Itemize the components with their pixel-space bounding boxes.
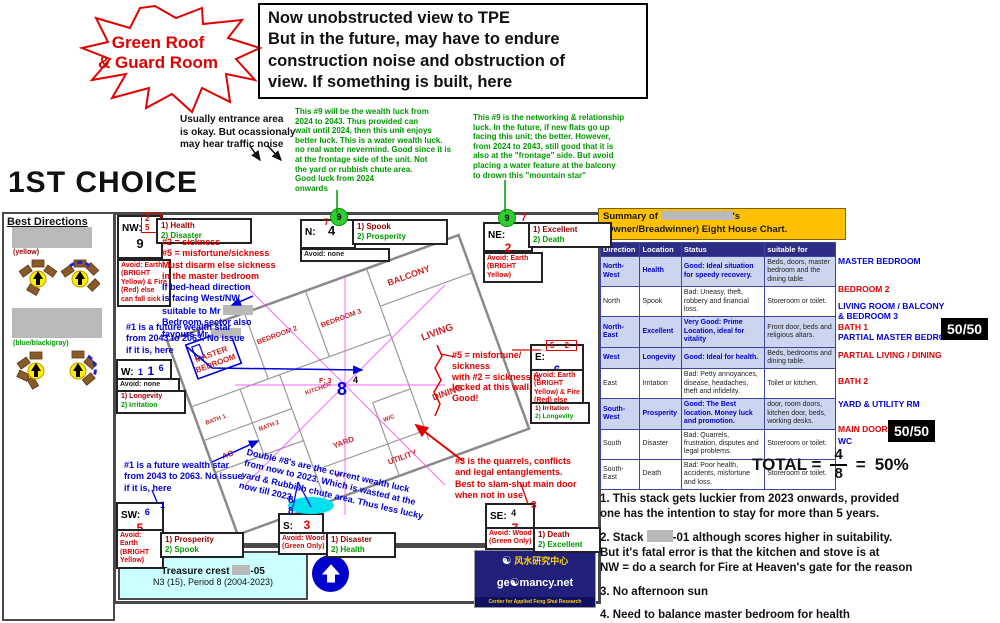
lucky-star-circle: 9 bbox=[498, 209, 516, 227]
starburst-label: Green Roof & Guard Room bbox=[78, 33, 238, 73]
table-row: South-WestProsperity Good: The Best loca… bbox=[601, 399, 836, 429]
note-1: 1. This stack gets luckier from 2023 onw… bbox=[600, 492, 998, 521]
luck-2: 2) Irritation bbox=[121, 402, 181, 411]
avoid-se: Avoid: Wood (Green Only) bbox=[485, 527, 537, 550]
best-directions-caption-2: (blue/black/gray) bbox=[13, 340, 69, 347]
score-badge-1: 50/50 bbox=[941, 318, 988, 340]
compass-w: W: 1 1 6 bbox=[116, 359, 172, 380]
up-arrow-icon bbox=[320, 563, 342, 585]
avoid-ne: Avoid: Earth (BRIGHT Yellow) bbox=[483, 252, 543, 283]
redacted-name-1 bbox=[12, 227, 92, 248]
wealth-star-note-bottom: #1 is a future wealth star from 2043 to … bbox=[124, 460, 243, 494]
logo-tagline: Center for Applied Feng Shui Research bbox=[475, 597, 595, 607]
tpe-view-note: Now unobstructed view to TPE But in the … bbox=[258, 3, 648, 99]
page-title: 1ST CHOICE bbox=[8, 166, 198, 200]
yinyang-icon: ☯ bbox=[502, 555, 512, 567]
up-arrow-button[interactable] bbox=[312, 555, 349, 592]
best-directions-caption-1: (yellow) bbox=[13, 249, 39, 256]
center-star: 8 bbox=[337, 379, 347, 399]
bed-direction-icon bbox=[60, 258, 100, 298]
entrance-note: Usually entrance area is okay. But ocass… bbox=[180, 114, 295, 152]
redacted-unit bbox=[232, 565, 250, 575]
lucky-star-circle: 9 bbox=[330, 208, 348, 226]
summary-header: Summary of 's (Owner/Breadwinner) Eight … bbox=[598, 208, 846, 240]
compass-sw: SW: 6 1 5 bbox=[116, 502, 164, 532]
assign-bath2: BATH 2 bbox=[838, 376, 868, 386]
assign-living: LIVING ROOM / BALCONY bbox=[838, 301, 944, 311]
quarrels-note: #3 is the quarrels, conflicts and legal … bbox=[455, 456, 595, 501]
unit-period: N3 (15), Period 8 (2004-2023) bbox=[153, 577, 273, 587]
avoid-sw: Avoid: Earth (BRIGHT Yellow) bbox=[116, 529, 164, 569]
conclusion-notes: 1. This stack gets luckier from 2023 onw… bbox=[600, 492, 998, 623]
redacted-stack-id bbox=[647, 530, 673, 542]
luck-1: 1) Prosperity bbox=[165, 535, 239, 545]
luck-1: 1) Health bbox=[161, 221, 247, 231]
score-badge-2: 50/50 bbox=[888, 420, 935, 442]
assign-bath1: BATH 1 bbox=[838, 322, 868, 332]
luck-2: 2) Health bbox=[331, 545, 391, 555]
table-row: NorthSpook Bad: Uneasy, theft, robbery a… bbox=[601, 287, 836, 317]
luck-2: 2) Prosperity bbox=[357, 232, 443, 242]
table-header-row: Direction Location Status suitable for bbox=[601, 243, 836, 257]
luck-2: 2) Excellent bbox=[538, 540, 596, 550]
sickness-warning: #2 = sickness #5 = misfortune/sickness M… bbox=[162, 237, 322, 282]
luck-1: 1) Excellent bbox=[533, 225, 607, 235]
redacted-name-3 bbox=[223, 305, 253, 315]
logo-name: ge☯mancy.net bbox=[475, 576, 595, 589]
assign-master: MASTER BEDROOM bbox=[838, 256, 921, 266]
table-row: EastIrritation Bad: Petty annoyances, di… bbox=[601, 369, 836, 399]
total-score: TOTAL = 4 8 = 50% bbox=[752, 447, 909, 482]
assign-maindoor: MAIN DOOR bbox=[838, 424, 888, 434]
luck-1: 1) Irritation bbox=[535, 405, 585, 413]
wealth-luck-note: This #9 will be the wealth luck from 202… bbox=[295, 107, 451, 193]
luck-1: 1) Death bbox=[538, 530, 596, 540]
table-row: North-WestHealth Good: Ideal situation f… bbox=[601, 257, 836, 287]
bed-direction-icon bbox=[58, 350, 98, 390]
assign-wc: WC bbox=[838, 436, 852, 446]
center-num: 4 bbox=[353, 375, 358, 385]
locked-wall-note: #5 = misfortune/ sickness with #2 = sick… bbox=[452, 350, 544, 404]
note-3: 3. No afternoon sun bbox=[600, 585, 998, 600]
luck-1: 1) Spook bbox=[357, 222, 443, 232]
assign-partial-living: PARTIAL LIVING / DINING bbox=[838, 350, 942, 360]
feng-shui-analysis-page: Green Roof & Guard Room Now unobstructed… bbox=[0, 0, 1000, 623]
networking-luck-note: This #9 is the networking & relationship… bbox=[473, 113, 624, 180]
avoid-s: Avoid: Wood (Green Only) bbox=[278, 532, 330, 555]
note-4: 4. Need to balance master bedroom for he… bbox=[600, 608, 998, 623]
bedhead-advice: If bed-head direction is facing West/NW bbox=[162, 282, 322, 305]
luck-1: 1) Disaster bbox=[331, 535, 391, 545]
redacted-name-2 bbox=[12, 308, 102, 338]
geomancy-logo[interactable]: ☯ 风水研究中心 ge☯mancy.net Center for Applied… bbox=[474, 550, 596, 608]
score-fraction: 4 8 bbox=[830, 447, 846, 482]
luck-1: 1) Longevity bbox=[121, 393, 181, 402]
assign-bedroom2: BEDROOM 2 bbox=[838, 284, 889, 294]
wealth-star-note-top: #1 is a future wealth star from 2043 to … bbox=[126, 322, 245, 356]
assign-yard: YARD & UTILITY RM bbox=[838, 399, 920, 409]
bed-direction-icon bbox=[18, 258, 58, 298]
center-facing: F: 3 bbox=[319, 378, 332, 385]
redacted-name-5 bbox=[661, 211, 733, 220]
table-row: WestLongevity Good: Ideal for health.Bed… bbox=[601, 347, 836, 369]
note-2: 2. Stack -01 although scores higher in s… bbox=[600, 530, 998, 575]
luck-2: 2) Longevity bbox=[535, 413, 585, 421]
table-row: North-EastExcellent Very Good: Prime Loc… bbox=[601, 317, 836, 347]
luck-2: 2) Death bbox=[533, 235, 607, 245]
bed-direction-icon bbox=[16, 350, 56, 390]
luck-2: 2) Spook bbox=[165, 545, 239, 555]
